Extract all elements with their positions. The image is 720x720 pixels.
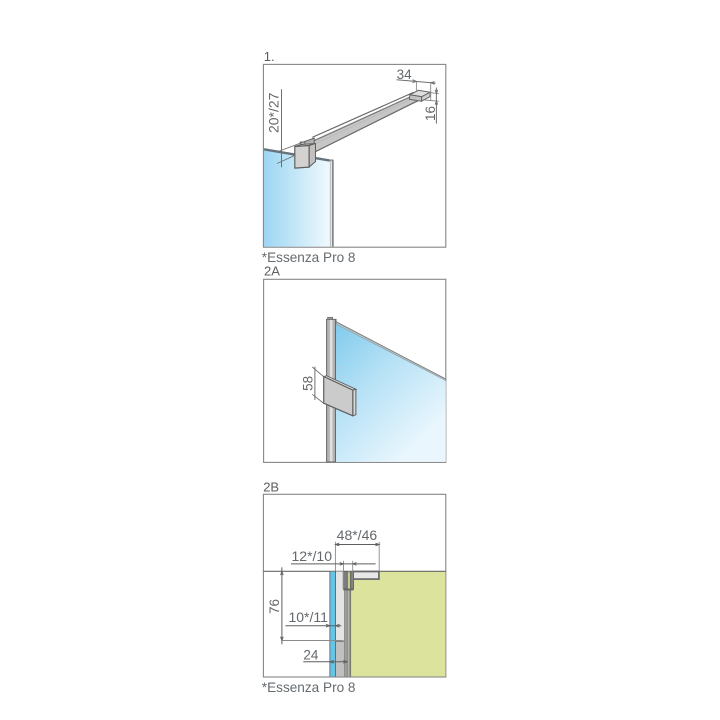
- svg-text:16: 16: [423, 106, 438, 121]
- svg-text:12*/10: 12*/10: [292, 548, 333, 564]
- svg-text:20*/27: 20*/27: [265, 92, 281, 133]
- svg-text:48*/46: 48*/46: [337, 527, 378, 543]
- svg-text:1.: 1.: [264, 49, 275, 64]
- svg-text:2B: 2B: [263, 480, 279, 495]
- svg-text:10*/11: 10*/11: [288, 609, 328, 625]
- svg-text:34: 34: [397, 67, 413, 82]
- svg-text:*Essenza Pro 8: *Essenza Pro 8: [262, 680, 356, 695]
- svg-text:76: 76: [267, 599, 282, 614]
- svg-text:24: 24: [303, 647, 319, 662]
- svg-text:58: 58: [301, 376, 316, 391]
- svg-text:2A: 2A: [264, 264, 280, 279]
- svg-text:*Essenza Pro 8: *Essenza Pro 8: [262, 250, 356, 265]
